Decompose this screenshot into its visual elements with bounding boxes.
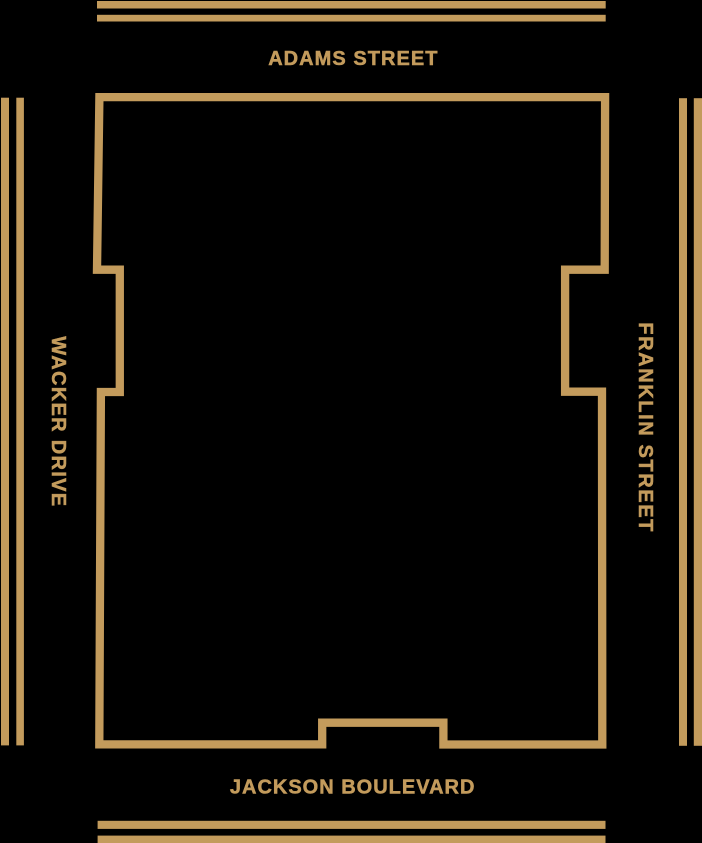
- svg-text:JACKSON BOULEVARD: JACKSON BOULEVARD: [230, 777, 476, 799]
- svg-text:WACKER DRIVE: WACKER DRIVE: [47, 336, 69, 507]
- svg-text:ADAMS STREET: ADAMS STREET: [268, 48, 438, 70]
- svg-text:FRANKLIN STREET: FRANKLIN STREET: [634, 322, 656, 533]
